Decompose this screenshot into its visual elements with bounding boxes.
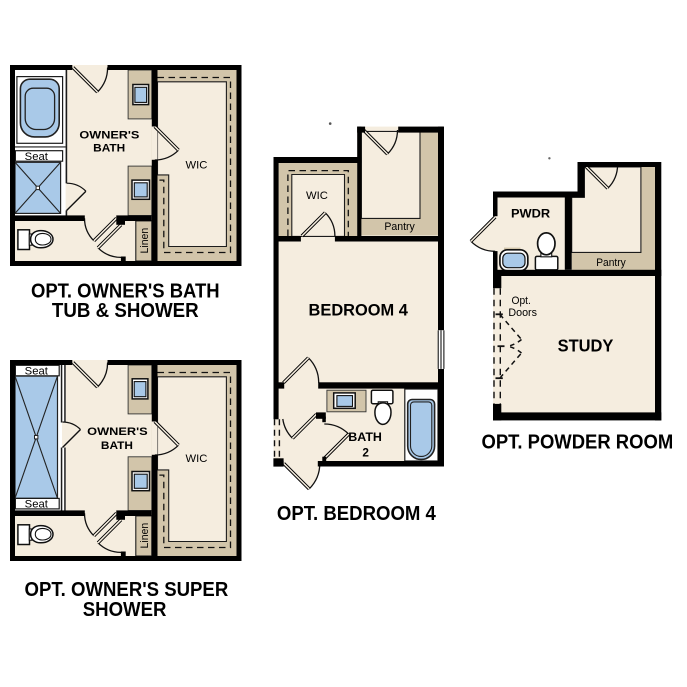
svg-text:Seat: Seat [25, 499, 48, 511]
svg-text:2: 2 [362, 445, 369, 459]
svg-text:BATH: BATH [93, 143, 125, 155]
svg-text:STUDY: STUDY [558, 336, 614, 356]
svg-text:Linen: Linen [139, 523, 151, 549]
svg-text:OPT. BEDROOM 4: OPT. BEDROOM 4 [277, 503, 437, 525]
svg-text:BEDROOM 4: BEDROOM 4 [309, 301, 409, 320]
svg-text:Opt.: Opt. [512, 295, 531, 307]
svg-text:Linen: Linen [139, 228, 151, 254]
svg-text:WIC: WIC [186, 160, 208, 172]
svg-text:OWNER'S: OWNER'S [87, 426, 148, 438]
svg-text:SHOWER: SHOWER [83, 599, 167, 621]
svg-text:BATH: BATH [101, 440, 133, 452]
svg-text:TUB & SHOWER: TUB & SHOWER [52, 300, 199, 322]
svg-text:OWNER'S: OWNER'S [79, 129, 139, 141]
svg-text:PWDR: PWDR [511, 206, 550, 220]
svg-text:Pantry: Pantry [384, 221, 415, 233]
svg-text:BATH: BATH [348, 430, 382, 444]
svg-text:Doors: Doors [508, 307, 537, 319]
svg-text:OPT. OWNER'S SUPER: OPT. OWNER'S SUPER [25, 579, 229, 601]
svg-text:WIC: WIC [186, 453, 208, 465]
svg-text:OPT. POWDER ROOM: OPT. POWDER ROOM [482, 432, 674, 454]
svg-text:Seat: Seat [25, 151, 48, 163]
svg-text:WIC: WIC [306, 190, 328, 202]
svg-text:Pantry: Pantry [596, 257, 626, 269]
